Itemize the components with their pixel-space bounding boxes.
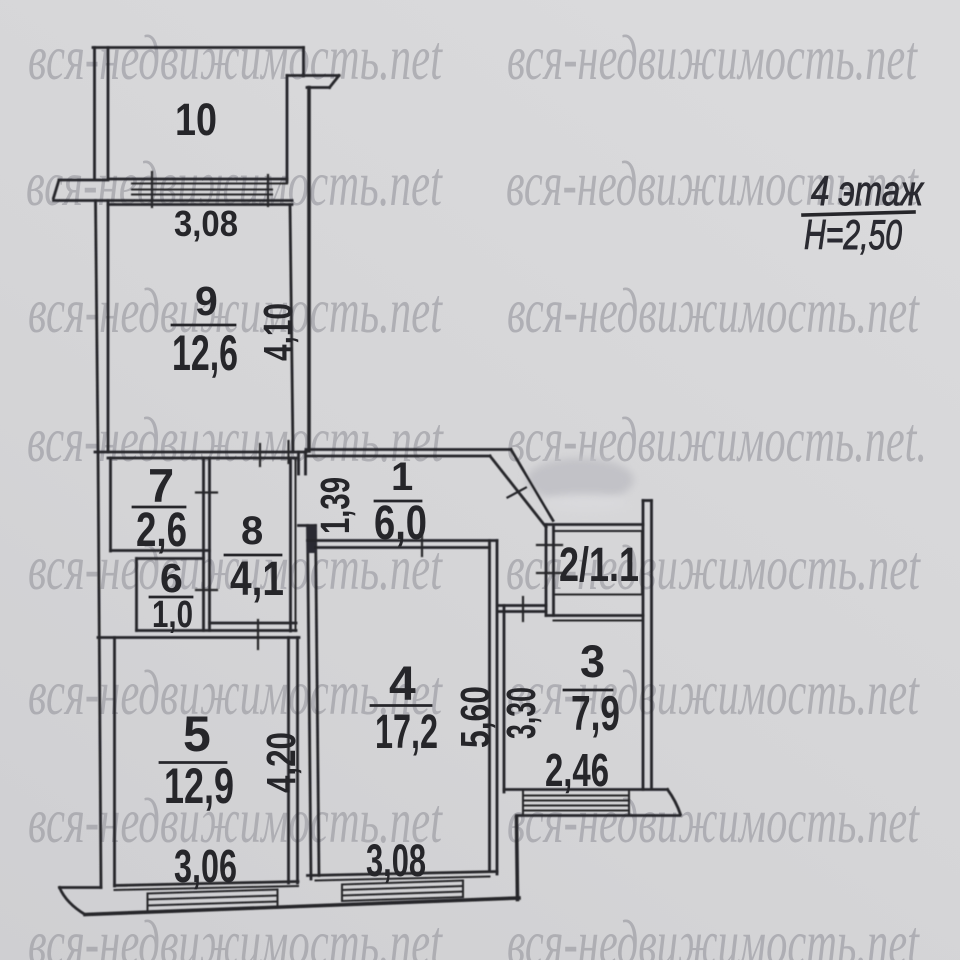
svg-text:8: 8 [241,509,263,553]
svg-text:12,6: 12,6 [172,325,238,381]
svg-text:3,30: 3,30 [498,687,544,739]
svg-text:вся-недвижимость.net: вся-недвижимость.net [507,657,920,728]
svg-text:5,60: 5,60 [452,686,498,748]
svg-text:2/1.1: 2/1.1 [559,539,639,592]
svg-text:1,39: 1,39 [312,477,358,534]
svg-text:3,08: 3,08 [174,203,238,244]
svg-text:3,08: 3,08 [366,835,426,886]
svg-text:вся-недвижимость.net: вся-недвижимость.net [28,22,443,93]
svg-text:6,0: 6,0 [374,497,427,550]
svg-text:3,06: 3,06 [174,840,237,892]
svg-text:3: 3 [580,636,605,687]
svg-text:17,2: 17,2 [375,706,438,759]
svg-text:вся-недвижимость.net: вся-недвижимость.net [507,22,918,93]
svg-text:10: 10 [175,94,217,145]
svg-text:вся-недвижимость.net: вся-недвижимость.net [507,907,920,960]
svg-text:4,1: 4,1 [230,553,284,606]
svg-text:4,10: 4,10 [255,303,301,361]
svg-text:12,9: 12,9 [164,758,234,814]
svg-text:4,20: 4,20 [258,732,304,793]
svg-text:7,9: 7,9 [571,687,620,741]
svg-text:вся-недвижимость.net: вся-недвижимость.net [27,404,444,475]
svg-text:Н=2,50: Н=2,50 [804,211,902,258]
svg-text:2,46: 2,46 [545,744,609,796]
svg-text:2,6: 2,6 [136,504,187,557]
svg-text:1: 1 [391,455,413,499]
svg-text:5: 5 [183,706,211,762]
svg-text:9: 9 [195,278,218,324]
svg-text:вся-недвижимость.net: вся-недвижимость.net [507,275,920,346]
svg-text:4 этаж: 4 этаж [811,167,925,214]
svg-text:1,0: 1,0 [152,594,193,636]
svg-text:4: 4 [389,658,416,711]
